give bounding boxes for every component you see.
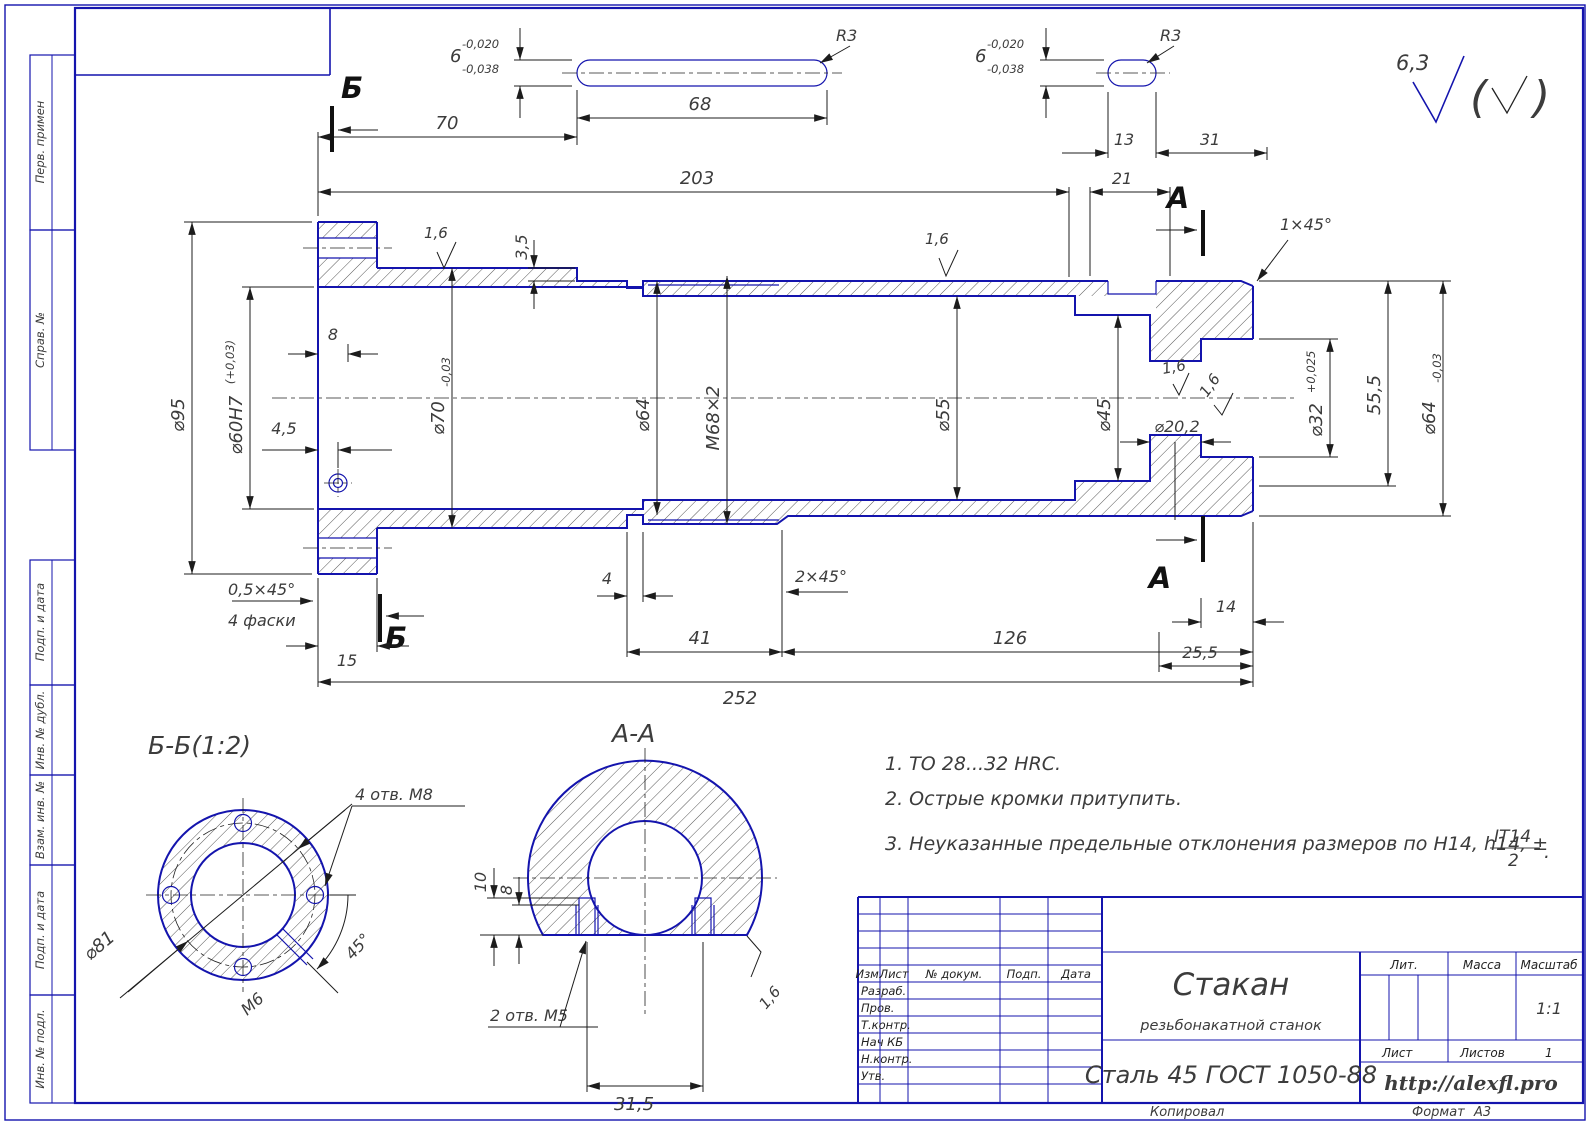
dim-55-5-label: 55,5	[1364, 375, 1385, 415]
dim-70-label: 70	[436, 113, 459, 134]
rough-2: 1,6	[925, 230, 949, 248]
tb-role-prov: Пров.	[861, 1001, 894, 1015]
dim-4-label: 4	[602, 569, 612, 588]
dim-126-label: 126	[993, 628, 1027, 649]
keyway1-radius-label: R3	[836, 26, 857, 45]
dim-d55-label: ⌀55	[933, 398, 954, 432]
copied-label: Копировал	[1150, 1105, 1224, 1120]
stamp-podp-data-1: Подп. и дата	[33, 583, 47, 661]
keyway-top-views	[562, 60, 1170, 86]
dim-m6-label: М6	[237, 989, 268, 1019]
note-3-tail: .	[1544, 841, 1550, 863]
section-a-title: А-А	[610, 719, 655, 748]
dim-4-5-label: 4,5	[271, 419, 296, 438]
tb-role-nachkb: Нач КБ	[861, 1035, 903, 1049]
dim-3-5-label: 3,5	[512, 234, 531, 259]
margin-stamps: Перв. примен Справ. № Подп. и дата Инв. …	[30, 55, 75, 1103]
note-3-frac-num: IT14	[1494, 827, 1531, 847]
roughness-value: 6,3	[1396, 51, 1429, 75]
section-b-title: Б-Б(1:2)	[148, 731, 251, 760]
hatch-flange-lower-a	[318, 509, 377, 538]
dim-d64r-label: ⌀64	[1419, 401, 1440, 435]
dim-2x45-label: 2×45°	[795, 567, 847, 586]
tb-lit-label: Лит.	[1389, 958, 1418, 972]
dim-d45-label: ⌀45	[1094, 398, 1115, 432]
dim-21-label: 21	[1112, 169, 1132, 188]
tb-sheets-label: Листов	[1459, 1046, 1505, 1060]
stamp-inv-dubl: Инв. № дубл.	[33, 691, 47, 770]
dim-d64r-tol: -0,03	[1430, 353, 1444, 383]
tb-scale-label: Масштаб	[1520, 958, 1578, 972]
dim-25-5-label: 25,5	[1182, 643, 1218, 662]
stamp-vzam-inv: Взам. инв. №	[33, 781, 47, 859]
stamp-inv-podl: Инв. № подл.	[33, 1009, 47, 1088]
tb-sheet-label: Лист	[1381, 1046, 1413, 1060]
dim-chamfer05-label: 0,5×45°	[228, 580, 295, 599]
dim-252-label: 252	[723, 688, 757, 709]
note-2: 2. Острые кромки притупить.	[885, 788, 1182, 810]
keyway-width-dim-2: 6 -0,020 -0,038 R3	[975, 26, 1181, 118]
dim-8-label: 8	[328, 325, 338, 344]
rough-5: 1,6	[755, 983, 784, 1013]
tb-col-podp: Подп.	[1007, 967, 1042, 981]
surface-roughness-corner: 6,3 ( )	[1396, 51, 1550, 123]
rough-1: 1,6	[424, 224, 448, 242]
hatch-flange-upper-a	[318, 222, 377, 238]
dim-d70-tol: -0,03	[439, 357, 453, 387]
drawing-sheet: Перв. примен Справ. № Подп. и дата Инв. …	[0, 0, 1590, 1125]
paren-close: )	[1530, 72, 1550, 123]
keyway-slot-cut	[1108, 281, 1156, 294]
technical-notes: 1. ТО 28...32 HRC. 2. Острые кромки прит…	[885, 753, 1550, 871]
format-value: А3	[1473, 1105, 1491, 1120]
dim-14-label: 14	[1216, 597, 1236, 616]
dim-8a-label: 8	[497, 885, 516, 895]
part-name: Стакан	[1173, 967, 1290, 1003]
keyway-width-dim-1: 6 -0,020 -0,038 R3	[450, 26, 857, 118]
section-cut-marks: Б Б А А	[332, 71, 1203, 655]
dim-203-label: 203	[680, 168, 714, 189]
mark-b-lower: Б	[385, 621, 407, 655]
rough-3: 1,6	[1161, 356, 1188, 378]
keyway1-tol-bot: -0,038	[462, 62, 499, 76]
bore-profile-upper	[318, 287, 1253, 361]
rough-4: 1,6	[1196, 370, 1224, 400]
part-material: Сталь 45 ГОСТ 1050-88	[1085, 1061, 1377, 1089]
dim-m68-label: М68×2	[703, 386, 724, 451]
stamp-podp-data-2: Подп. и дата	[33, 891, 47, 969]
dim-15-label: 15	[337, 651, 357, 670]
keyway1-tol-top: -0,020	[462, 37, 499, 51]
dim-41-label: 41	[689, 628, 712, 649]
keyway2-width-label: 6	[975, 46, 986, 67]
roughness-marks-main: 1,6 1,6 1,6 1,6	[424, 224, 1233, 415]
hatch-flange-upper-b	[318, 258, 377, 287]
note-1: 1. ТО 28...32 HRC.	[885, 753, 1061, 775]
dim-facets-label: 4 фаски	[228, 611, 296, 630]
keyway2-tol-bot: -0,038	[987, 62, 1024, 76]
dim-d64-label: ⌀64	[633, 398, 654, 432]
tb-sheets-value: 1	[1545, 1046, 1553, 1060]
holes-m8-label: 4 отв. М8	[355, 785, 433, 804]
keyway2-tol-top: -0,020	[987, 37, 1024, 51]
tb-col-list: Лист	[878, 967, 908, 981]
stamp-perv-primen: Перв. примен	[33, 100, 47, 183]
holes-m5-label: 2 отв. М5	[490, 1006, 568, 1025]
tb-col-data: Дата	[1060, 967, 1091, 981]
dim-31-5-label: 31,5	[614, 1094, 654, 1115]
dim-13-label: 13	[1114, 130, 1134, 149]
title-block: Изм. Лист № докум. Подп. Дата Разраб. Пр…	[855, 897, 1583, 1103]
dim-1x45-label: 1×45°	[1280, 215, 1332, 234]
dim-68-label: 68	[689, 94, 712, 115]
footer-strip: Копировал Формат А3	[1150, 1105, 1491, 1120]
stamp-sprav-no: Справ. №	[33, 312, 47, 368]
dim-d20-2-label: ⌀20,2	[1154, 417, 1199, 436]
dim-d70-label: ⌀70	[428, 401, 449, 435]
dim-31-label: 31	[1200, 130, 1220, 149]
dim-d32-tol: +0,025	[1304, 351, 1318, 394]
tb-url: http://alexfl.pro	[1384, 1071, 1558, 1095]
note-3: 3. Неуказанные предельные отклонения раз…	[885, 833, 1548, 855]
dim-10-label: 10	[471, 872, 490, 892]
hatch-flange-lower-b	[318, 558, 377, 574]
dim-45deg-label: 45°	[341, 929, 374, 963]
tb-role-tkontr: Т.контр.	[861, 1018, 911, 1032]
mark-a-lower: А	[1147, 561, 1171, 595]
note-3-frac-den: 2	[1508, 851, 1519, 871]
main-view	[272, 222, 1298, 574]
tb-col-dokum: № докум.	[925, 967, 983, 981]
section-b-view: Б-Б(1:2) ⌀81 4 отв. М8 М6 45°	[80, 731, 465, 1019]
tb-role-utv: Утв.	[861, 1069, 885, 1083]
keyway1-width-label: 6	[450, 46, 461, 67]
tb-role-nkontr: Н.контр.	[861, 1052, 912, 1066]
tb-scale-value: 1:1	[1536, 999, 1562, 1018]
keyway2-radius-label: R3	[1160, 26, 1181, 45]
section-a-view: А-А 10 8 2 отв. М5 31,5 1,6	[471, 719, 784, 1115]
hatch-lower-wall	[377, 481, 1150, 528]
paren-open: (	[1470, 72, 1489, 123]
roughness-check2-icon	[1492, 76, 1527, 113]
mark-a-upper: А	[1165, 181, 1189, 215]
mark-b-upper: Б	[341, 71, 363, 105]
format-label: Формат	[1412, 1105, 1465, 1120]
dim-d60-label: ⌀60H7	[226, 395, 247, 454]
tb-role-razrab: Разраб.	[861, 984, 906, 998]
dim-d95-label: ⌀95	[168, 398, 189, 432]
tb-mass-label: Масса	[1463, 958, 1501, 972]
dim-d81-label: ⌀81	[80, 927, 119, 965]
dim-d32-label: ⌀32	[1306, 403, 1327, 437]
part-subtitle: резьбонакатной станок	[1139, 1018, 1322, 1034]
dim-d60-tol: (+0,03)	[223, 340, 237, 384]
